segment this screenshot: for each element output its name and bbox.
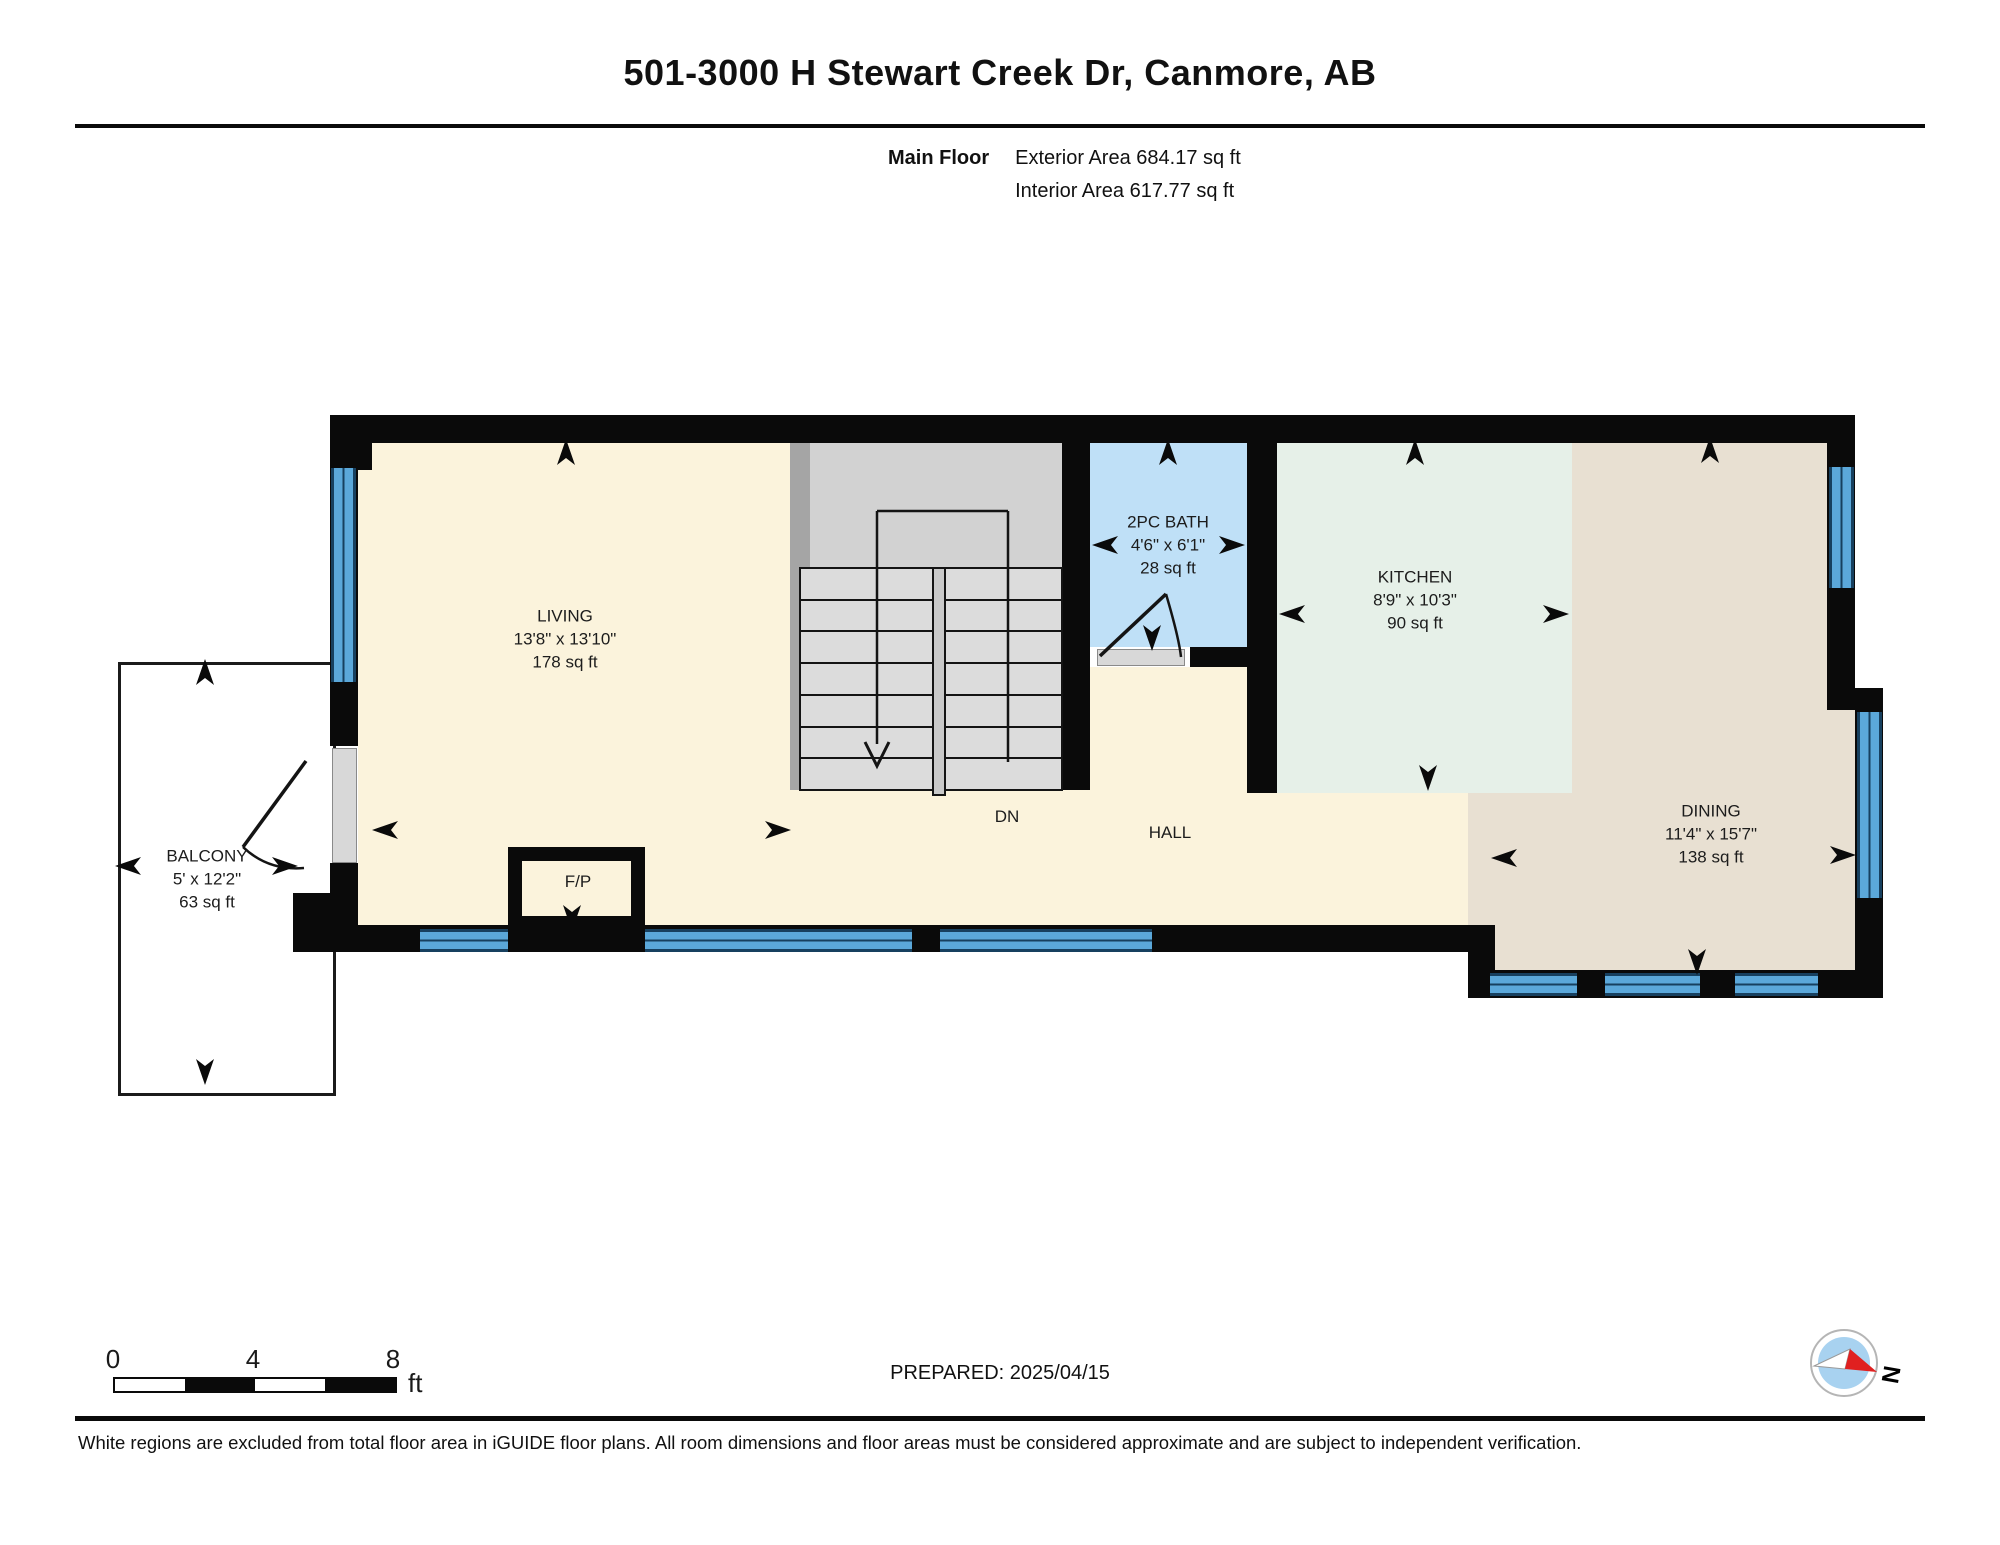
- dining-area-bump: [1827, 710, 1855, 793]
- hall-alcove-area: [1090, 667, 1247, 790]
- title-divider: [75, 124, 1925, 128]
- window-hall-bottom-1: [645, 929, 912, 952]
- stairs-dn-label: DN: [995, 807, 1020, 827]
- window-living-bottom: [420, 929, 508, 952]
- window-dining-bottom-2: [1605, 973, 1700, 996]
- stair-frame-left: [790, 443, 810, 790]
- page-title: 501-3000 H Stewart Creek Dr, Canmore, AB: [0, 52, 2000, 94]
- room-label-bath: 2PC BATH 4'6" x 6'1" 28 sq ft: [1127, 511, 1209, 580]
- stair-frame-bottom: [790, 770, 1078, 790]
- floor-name: Main Floor: [888, 142, 989, 208]
- stairwell-area: [790, 443, 1062, 790]
- wall-top: [330, 415, 1855, 443]
- window-dining-right-lower: [1857, 712, 1882, 898]
- wall-stair-right: [1062, 443, 1090, 790]
- dining-area-upper: [1572, 443, 1827, 793]
- window-living-left: [331, 468, 356, 682]
- room-label-balcony: BALCONY 5' x 12'2" 63 sq ft: [166, 845, 247, 914]
- prepared-date: PREPARED: 2025/04/15: [0, 1362, 2000, 1385]
- window-dining-bottom-3: [1735, 973, 1818, 996]
- hall-area: [795, 790, 1468, 925]
- balcony-door-sill: [332, 748, 357, 863]
- room-label-dining: DINING 11'4" x 15'7" 138 sq ft: [1665, 800, 1757, 869]
- window-dining-right-upper: [1829, 467, 1854, 588]
- interior-area: Interior Area 617.77 sq ft: [1015, 175, 1241, 208]
- room-label-living: LIVING 13'8" x 13'10" 178 sq ft: [514, 605, 617, 674]
- room-label-kitchen: KITCHEN 8'9" x 10'3" 90 sq ft: [1373, 566, 1457, 635]
- window-hall-bottom-2: [940, 929, 1152, 952]
- exterior-area: Exterior Area 684.17 sq ft: [1015, 142, 1241, 175]
- floor-summary: Main Floor Exterior Area 684.17 sq ft In…: [888, 142, 1241, 208]
- wall-kitchen-left: [1247, 443, 1277, 793]
- window-dining-bottom-1: [1490, 973, 1577, 996]
- hall-label: HALL: [1149, 823, 1192, 843]
- dining-area-lower: [1468, 793, 1855, 970]
- footer-divider: [75, 1416, 1925, 1421]
- floor-plan-page: 501-3000 H Stewart Creek Dr, Canmore, AB…: [0, 0, 2000, 1545]
- disclaimer-text: White regions are excluded from total fl…: [78, 1432, 1958, 1454]
- fireplace-label: F/P: [565, 872, 591, 892]
- bath-door-sill: [1097, 649, 1185, 666]
- area-summary: Exterior Area 684.17 sq ft Interior Area…: [1015, 142, 1241, 208]
